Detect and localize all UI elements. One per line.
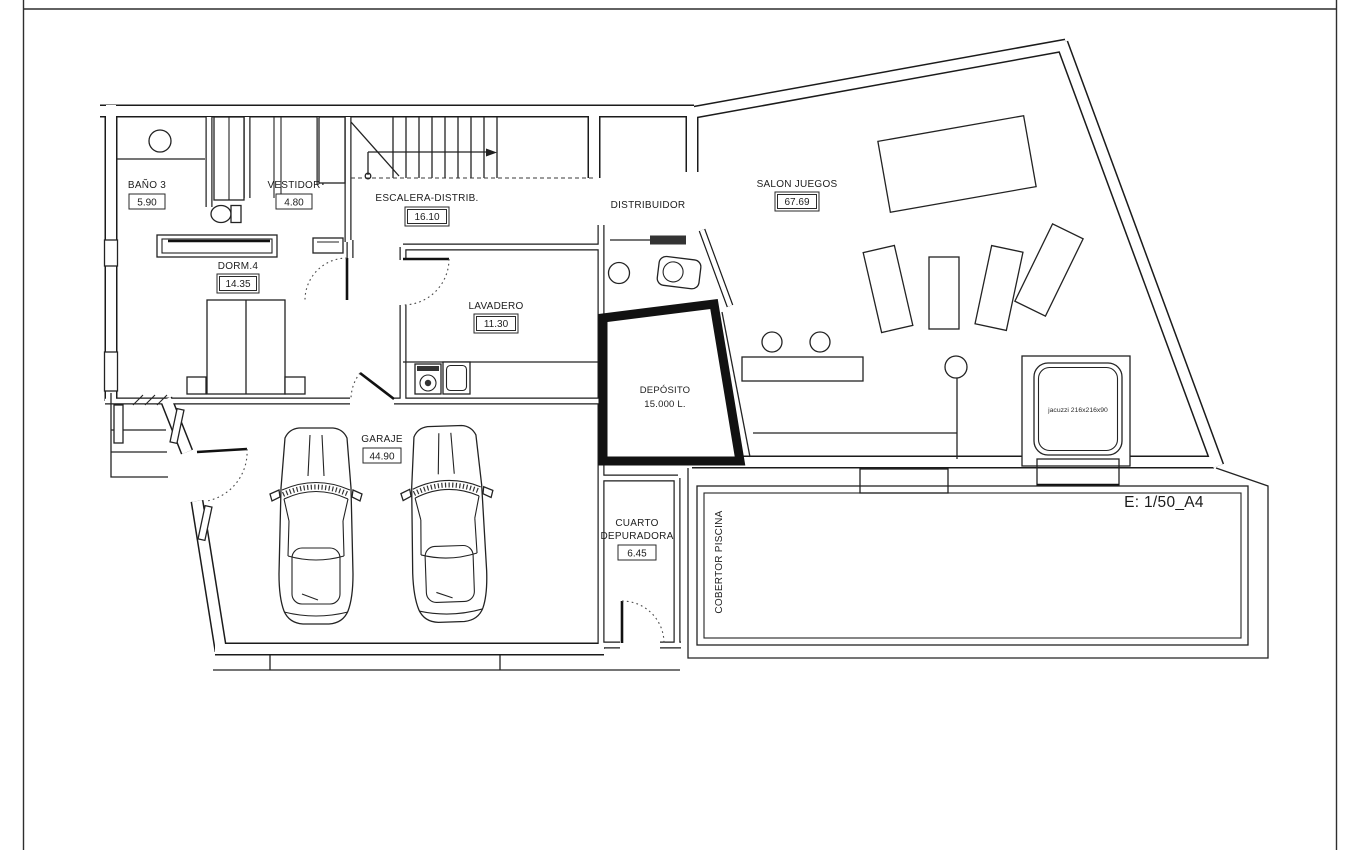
dorm4-furniture — [157, 235, 305, 394]
svg-text:SALON JUEGOS: SALON JUEGOS — [757, 179, 838, 190]
room-label-salon-juegos: SALON JUEGOS 67.69 — [757, 179, 838, 211]
loungers — [863, 224, 1083, 333]
svg-text:16.10: 16.10 — [414, 212, 439, 223]
room-label-escalera: ESCALERA-DISTRIB. 16.10 — [375, 193, 478, 226]
svg-text:DISTRIBUIDOR: DISTRIBUIDOR — [611, 200, 686, 211]
svg-text:67.69: 67.69 — [784, 197, 809, 208]
counter-edge — [753, 378, 957, 459]
nightstand — [285, 377, 305, 394]
wc-basin-icon — [609, 263, 630, 284]
svg-text:E: 1/50_A4: E: 1/50_A4 — [1124, 494, 1204, 511]
room-label-garaje: GARAJE 44.90 — [361, 434, 403, 463]
side-table-icon — [945, 356, 967, 378]
drawing-sheet: jacuzzi 216x216x90 BAÑO 3 5.90 VESTIDOR … — [0, 0, 1360, 850]
svg-text:LAVADERO: LAVADERO — [469, 301, 524, 312]
floor-plan-svg: jacuzzi 216x216x90 BAÑO 3 5.90 VESTIDOR … — [0, 0, 1360, 850]
svg-text:BAÑO 3: BAÑO 3 — [128, 178, 166, 191]
bar-stool-icon — [810, 332, 830, 352]
bar-stool-icon — [762, 332, 782, 352]
bar-counter — [742, 357, 863, 381]
room-label-vestidor: VESTIDOR 4.80 — [267, 180, 320, 209]
room-label-cuarto-depuradora: CUARTO DEPURADORA 6.45 — [600, 518, 673, 560]
jacuzzi: jacuzzi 216x216x90 — [1022, 356, 1130, 466]
svg-text:GARAJE: GARAJE — [361, 434, 403, 445]
room-label-dorm4: DORM.4 14.35 — [217, 261, 259, 293]
wc-toilet-icon — [656, 256, 701, 290]
svg-text:11.30: 11.30 — [484, 319, 509, 330]
stair-direction-line — [368, 152, 486, 175]
svg-text:6.45: 6.45 — [627, 549, 647, 560]
wc-shelf — [650, 236, 686, 245]
jacuzzi-label: jacuzzi 216x216x90 — [1047, 407, 1108, 414]
room-label-distribuidor: DISTRIBUIDOR — [611, 200, 686, 211]
svg-text:ESCALERA-DISTRIB.: ESCALERA-DISTRIB. — [375, 193, 478, 204]
washbasin-icon — [149, 130, 171, 152]
svg-text:VESTIDOR: VESTIDOR — [267, 180, 320, 191]
deposito-tank — [603, 304, 740, 461]
svg-text:44.90: 44.90 — [369, 452, 394, 463]
svg-text:COBERTOR PISCINA: COBERTOR PISCINA — [714, 510, 725, 613]
stair-arrow-icon — [486, 149, 497, 157]
nightstand — [187, 377, 206, 394]
scale-annotation: E: 1/50_A4 — [1124, 494, 1204, 511]
pool-deck — [688, 459, 1268, 658]
wc-fixtures — [609, 236, 702, 290]
car-2 — [399, 424, 498, 623]
desk — [157, 235, 277, 257]
svg-text:4.80: 4.80 — [284, 198, 304, 209]
washing-machine-icon — [415, 364, 441, 394]
steps — [860, 469, 948, 493]
svg-text:15.000 L.: 15.000 L. — [644, 399, 685, 410]
svg-text:DEPURADORA: DEPURADORA — [600, 531, 673, 542]
staircase — [351, 117, 594, 179]
laundry-sink-icon — [443, 362, 470, 394]
car-1 — [270, 428, 362, 624]
svg-text:DORM.4: DORM.4 — [218, 261, 259, 272]
room-label-cobertor-piscina: COBERTOR PISCINA — [714, 510, 725, 613]
lavadero-appliances — [403, 362, 598, 394]
svg-text:CUARTO: CUARTO — [615, 518, 658, 529]
svg-text:DEPÓSITO: DEPÓSITO — [640, 385, 691, 396]
toilet-icon — [211, 206, 241, 223]
room-label-lavadero: LAVADERO 11.30 — [469, 301, 524, 333]
svg-text:14.35: 14.35 — [225, 279, 250, 290]
billiard-table — [878, 116, 1036, 213]
bed — [187, 300, 305, 394]
room-label-bano3: BAÑO 3 5.90 — [128, 178, 166, 209]
svg-text:5.90: 5.90 — [137, 198, 157, 209]
